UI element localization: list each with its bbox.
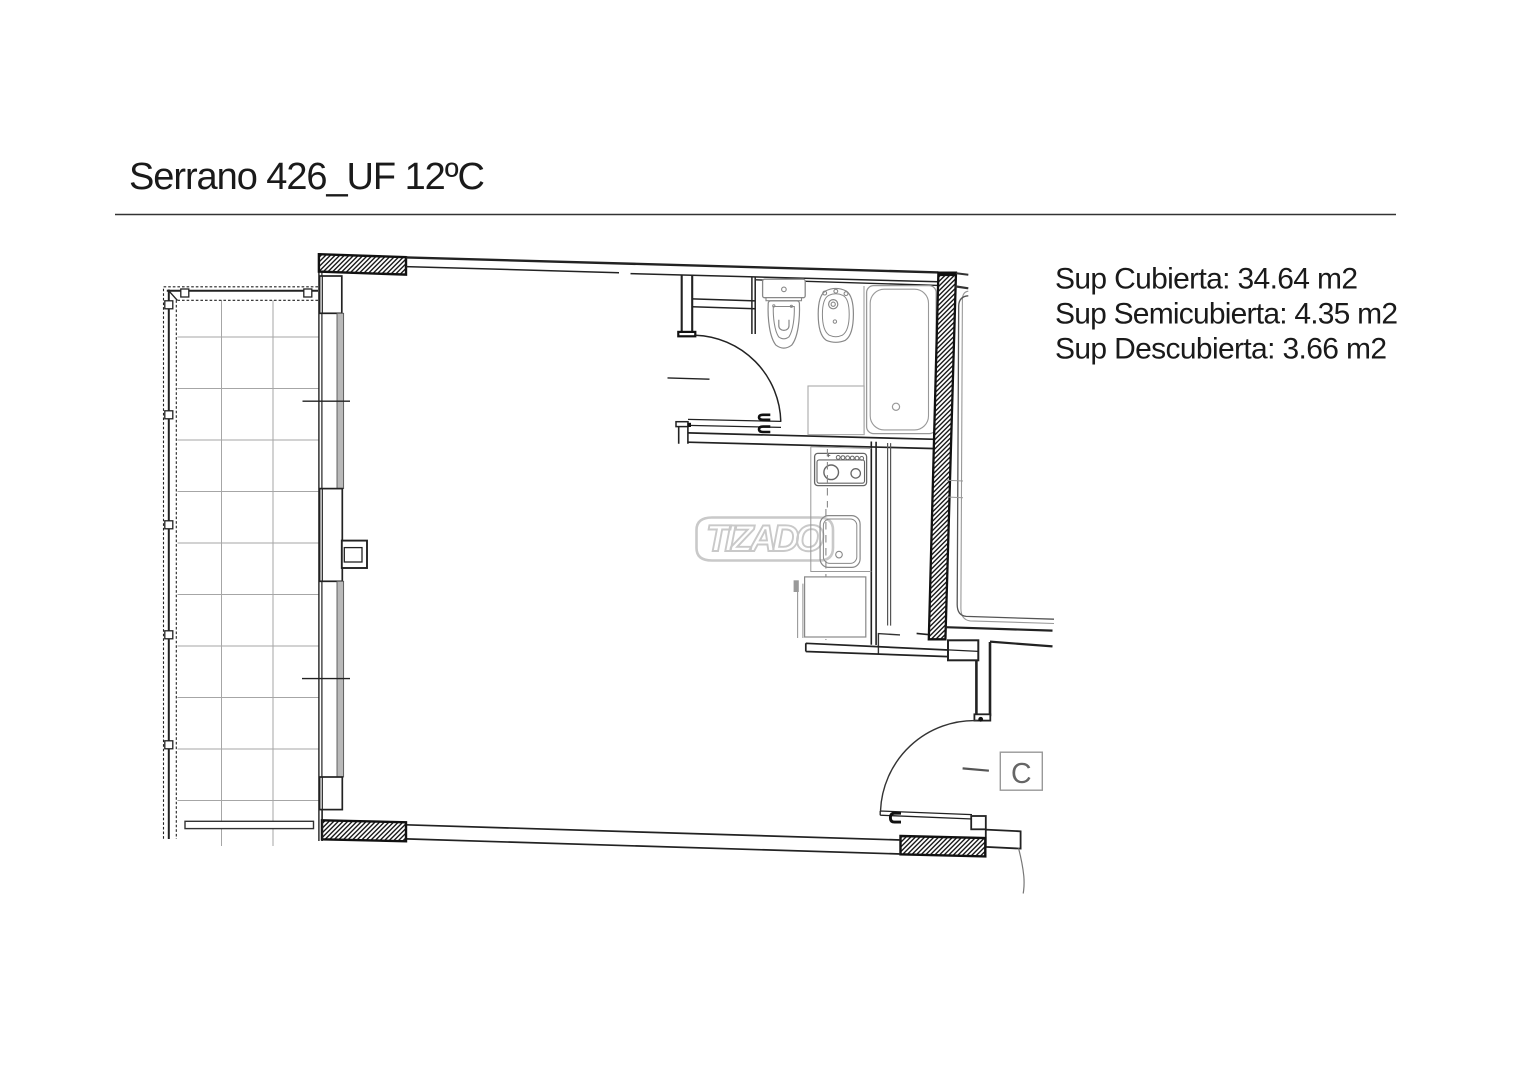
svg-text:Sup Descubierta: 3.66 m2: Sup Descubierta: 3.66 m2: [1055, 333, 1387, 366]
svg-text:Sup Cubierta: 34.64 m2: Sup Cubierta: 34.64 m2: [1055, 263, 1358, 296]
svg-text:Sup Semicubierta: 4.35 m2: Sup Semicubierta: 4.35 m2: [1055, 298, 1398, 331]
svg-text:TIZADO: TIZADO: [706, 518, 824, 559]
svg-text:Serrano 426_UF 12ºC: Serrano 426_UF 12ºC: [129, 156, 485, 198]
svg-text:C: C: [1011, 758, 1032, 790]
